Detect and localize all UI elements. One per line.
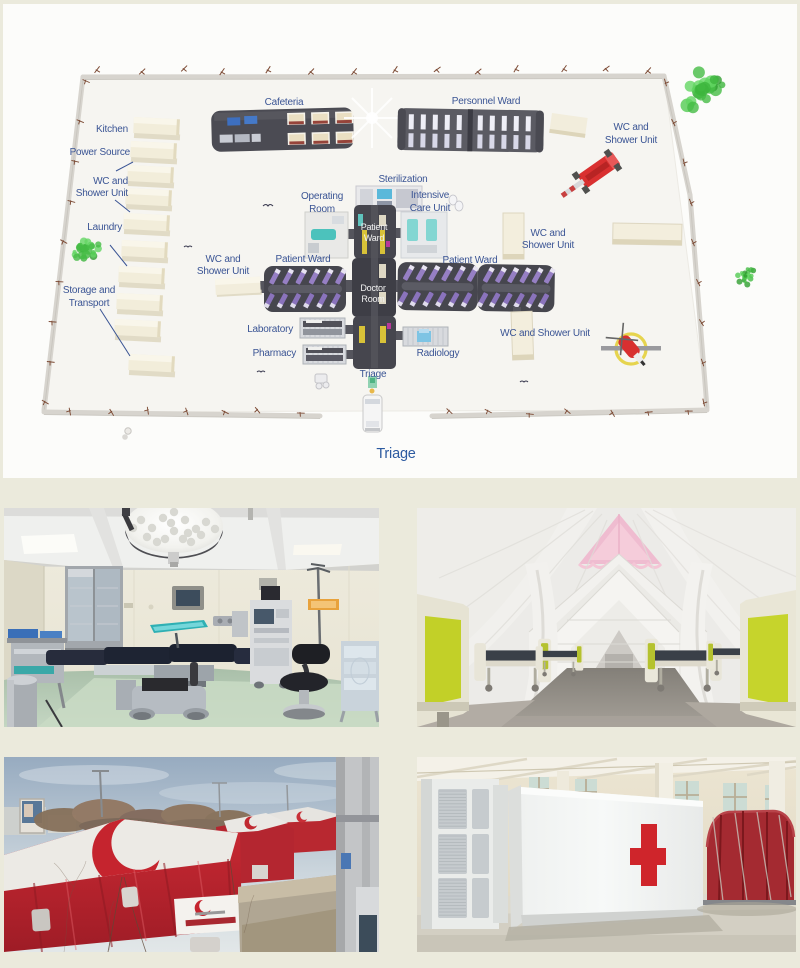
svg-text:Room: Room [309, 204, 335, 215]
svg-text:Pharmacy: Pharmacy [253, 348, 297, 359]
svg-text:Cafeteria: Cafeteria [265, 97, 304, 108]
svg-text:Operating: Operating [301, 191, 343, 202]
svg-text:WC and: WC and [531, 228, 566, 239]
svg-text:Room: Room [361, 294, 384, 304]
svg-text:Triage: Triage [360, 369, 387, 380]
svg-text:Ward: Ward [364, 233, 385, 243]
svg-text:Power Source: Power Source [70, 147, 131, 158]
svg-text:Shower Unit: Shower Unit [522, 240, 575, 251]
svg-text:Personnel Ward: Personnel Ward [452, 96, 521, 107]
svg-text:Patient Ward: Patient Ward [275, 254, 330, 265]
svg-text:Patient Ward: Patient Ward [442, 255, 497, 266]
svg-text:Intensive: Intensive [411, 190, 450, 201]
svg-text:Doctor: Doctor [360, 283, 386, 293]
svg-text:Sterilization: Sterilization [378, 174, 427, 185]
svg-text:Shower Unit: Shower Unit [605, 135, 658, 146]
svg-text:Storage and: Storage and [63, 285, 115, 296]
svg-text:WC and: WC and [93, 176, 128, 187]
svg-text:Kitchen: Kitchen [96, 124, 128, 135]
svg-text:WC and Shower Unit: WC and Shower Unit [500, 328, 590, 339]
svg-text:Radiology: Radiology [417, 348, 460, 359]
svg-text:Shower Unit: Shower Unit [197, 266, 250, 277]
svg-text:WC and: WC and [206, 254, 241, 265]
svg-text:Patient: Patient [361, 222, 388, 232]
svg-text:WC and: WC and [614, 122, 649, 133]
svg-text:Triage: Triage [376, 446, 415, 462]
svg-text:Laundry: Laundry [87, 222, 122, 233]
svg-text:Transport: Transport [69, 298, 110, 309]
svg-text:Shower Unit: Shower Unit [76, 188, 129, 199]
svg-text:Care Unit: Care Unit [410, 203, 451, 214]
svg-text:Laboratory: Laboratory [247, 324, 293, 335]
